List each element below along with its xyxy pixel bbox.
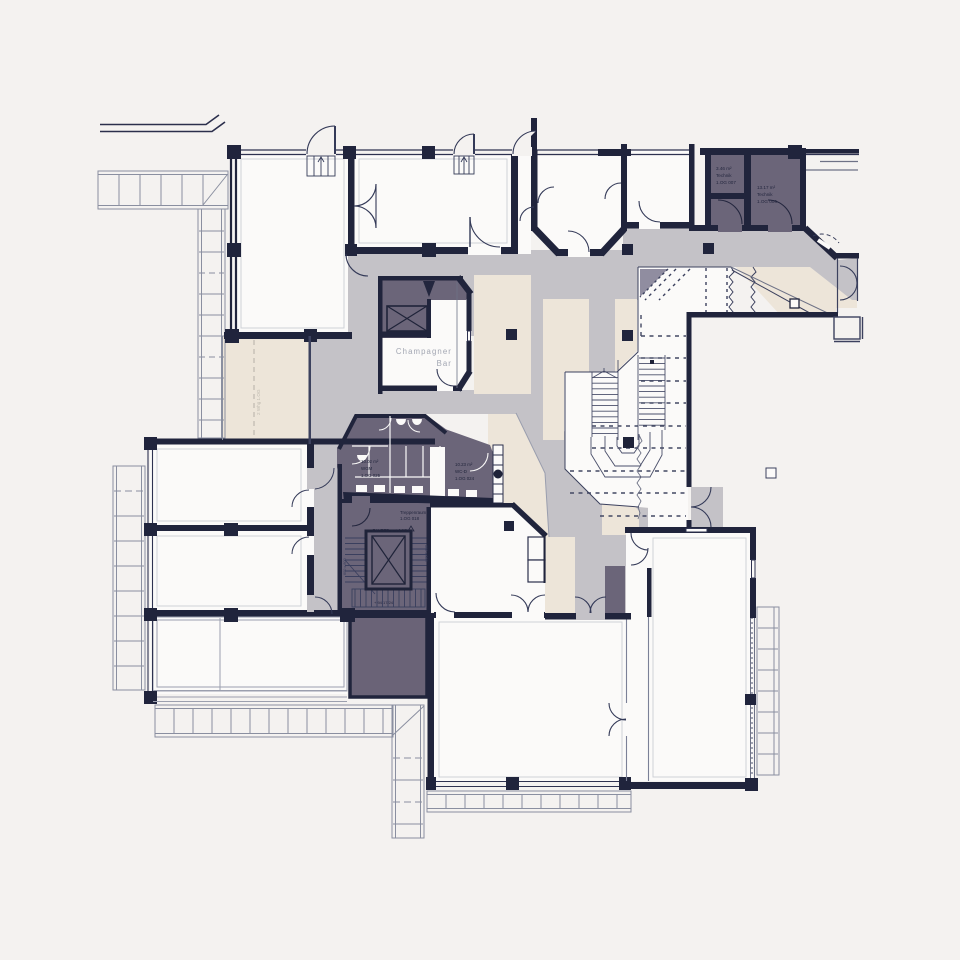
svg-text:+ 94 17/24: + 94 17/24 xyxy=(374,600,394,605)
svg-text:1.OG 018: 1.OG 018 xyxy=(400,516,420,521)
svg-text:10.23 m²: 10.23 m² xyxy=(455,462,473,467)
svg-text:3.46 m²: 3.46 m² xyxy=(716,166,732,171)
svg-text:WC-D: WC-D xyxy=(455,469,467,474)
svg-text:OK FFB = +4,18: OK FFB = +4,18 xyxy=(372,528,407,534)
svg-text:1.OG 006: 1.OG 006 xyxy=(757,199,777,204)
svg-text:600 x 800: 600 x 800 xyxy=(424,545,428,562)
svg-text:Technik: Technik xyxy=(757,192,773,197)
svg-text:1.OG 025: 1.OG 025 xyxy=(361,473,381,478)
svg-text:1.OG 024: 1.OG 024 xyxy=(455,476,475,481)
svg-text:Treppenraum: Treppenraum xyxy=(400,510,427,515)
svg-text:13.17 m²: 13.17 m² xyxy=(757,185,776,190)
svg-text:Champagner: Champagner xyxy=(396,347,452,356)
svg-text:2 Whg 1.OG: 2 Whg 1.OG xyxy=(256,389,261,415)
svg-text:1.OG 007: 1.OG 007 xyxy=(716,180,736,185)
svg-text:WGM: WGM xyxy=(361,466,373,471)
svg-text:Bar: Bar xyxy=(437,359,452,368)
svg-text:10.02 m²: 10.02 m² xyxy=(361,459,379,464)
svg-text:Technik: Technik xyxy=(716,173,732,178)
svg-text:600 x 800: 600 x 800 xyxy=(343,558,347,575)
